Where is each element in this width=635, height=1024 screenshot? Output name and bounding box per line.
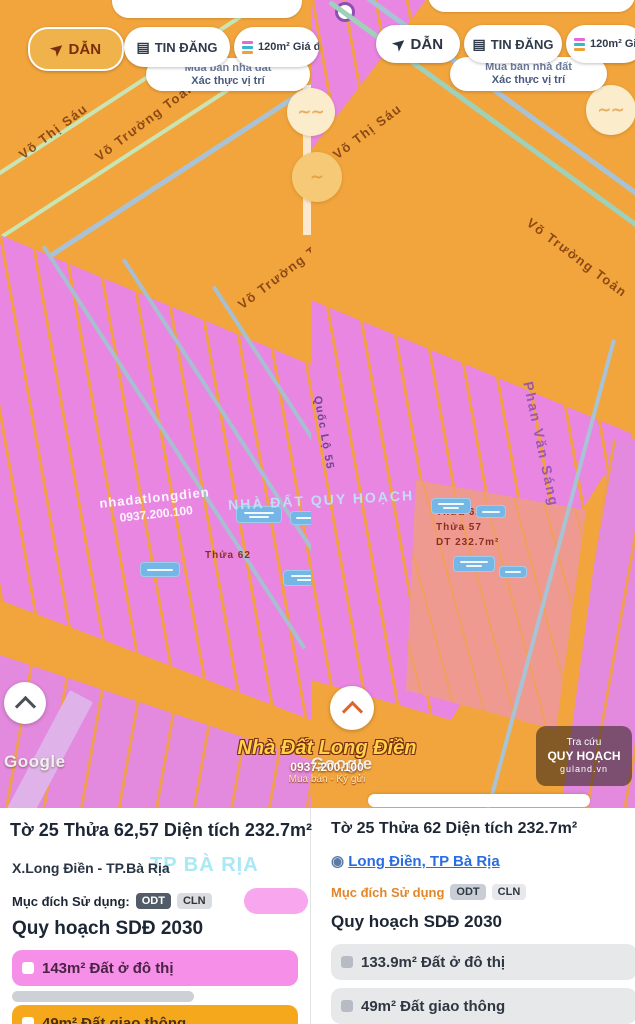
zoning-chip-traffic[interactable]: 49m² Đất giao thông: [331, 988, 635, 1024]
land-price-label: 120m² Giá đất: [258, 41, 319, 53]
land-price-button[interactable]: 120m² Giá đất: [234, 27, 319, 67]
parcel-info-right: Tờ 25 Thửa 62 Diện tích 232.7m² ◉ Long Đ…: [311, 808, 635, 1024]
chevron-up-fab[interactable]: [4, 682, 46, 724]
watermark-line: QUY HOẠCH: [547, 749, 620, 764]
navigation-arrow-icon: ➤: [389, 33, 410, 55]
parcel-location-link[interactable]: ◉ Long Điền, TP Bà Rịa: [331, 852, 500, 870]
chevron-up-icon: [341, 701, 362, 722]
purpose-row: Mục đích Sử dụng: ODT CLN: [12, 888, 308, 914]
road-label: Võ Thị Sáu: [16, 101, 91, 162]
listing-marker[interactable]: [431, 498, 471, 514]
parcel-annotation: Thửa 62: [205, 548, 251, 563]
seller-watermark-orange: Nhà Đất Long Điền 0937.200.100 Mua bán -…: [222, 736, 432, 786]
pink-pill-badge[interactable]: [244, 888, 308, 914]
watermark-title: Nhà Đất Long Điền: [222, 736, 432, 760]
zoning-chip-residential[interactable]: 143m² Đất ở đô thị: [12, 950, 298, 986]
sticker-circle[interactable]: ∼∼: [287, 88, 335, 136]
road-label: Võ Trường Toản: [524, 215, 630, 300]
location-text: X.Long Điền - TP.Bà Rịa: [12, 860, 170, 876]
sticker-circle[interactable]: ∼∼: [586, 85, 635, 135]
planning-title: Quy hoạch SDĐ 2030: [12, 918, 203, 940]
top-search-pill[interactable]: [428, 0, 635, 12]
zoning-chip-residential[interactable]: 133.9m² Đất ở đô thị: [331, 944, 635, 980]
parcel-location[interactable]: X.Long Điền - TP.Bà Rịa: [12, 860, 170, 876]
navigation-arrow-icon: ➤: [47, 38, 68, 60]
google-logo[interactable]: Google: [4, 752, 66, 772]
listings-button[interactable]: ▤ TIN ĐĂNG: [464, 25, 562, 63]
banner-line: Xác thực vị trí: [191, 75, 264, 88]
zoning-parcel-block: [0, 150, 311, 760]
purpose-row: Mục đích Sử dụng ODT CLN: [331, 884, 627, 900]
sheet-drag-handle[interactable]: [368, 794, 590, 807]
chevron-up-icon: [14, 696, 35, 717]
chip-bullet: [22, 962, 34, 974]
zoning-chip-traffic[interactable]: 49m² Đất giao thông: [12, 1005, 298, 1024]
chip-bullet: [22, 1017, 34, 1024]
planning-title: Quy hoạch SDĐ 2030: [331, 912, 502, 932]
listing-marker[interactable]: [283, 570, 311, 586]
directions-button[interactable]: ➤ DẪN: [28, 27, 124, 71]
zoning-badge-cln: CLN: [177, 893, 212, 909]
listing-marker[interactable]: [140, 562, 180, 577]
parcel-title: Tờ 25 Thửa 62 Diện tích 232.7m²: [331, 820, 631, 838]
road-label: Võ Trường Toản: [235, 227, 311, 312]
listing-marker[interactable]: [499, 566, 527, 578]
sticker-circle[interactable]: ∼: [292, 152, 342, 202]
zoning-badge-odt: ODT: [450, 884, 485, 900]
banner-line: Mua bán nhà đất: [485, 61, 572, 74]
newspaper-icon: ▤: [472, 36, 485, 53]
pin-icon: ◉: [331, 853, 344, 870]
listing-marker[interactable]: [476, 505, 506, 518]
planning-watermark-chip: Tra cứu QUY HOẠCH guland.vn: [536, 726, 632, 786]
chip-label: 143m² Đất ở đô thị: [42, 960, 174, 977]
zoning-parcel-block: [311, 0, 451, 160]
parcel-annotation: DT 232.7m²: [436, 535, 556, 550]
directions-label: DẪN: [69, 41, 102, 58]
listings-button[interactable]: ▤ TIN ĐĂNG: [124, 27, 230, 67]
banner-line: Xác thực vị trí: [492, 74, 565, 87]
watermark-phone: 0937.200.100: [222, 760, 432, 774]
purpose-label: Mục đích Sử dụng:: [12, 894, 130, 909]
directions-label: DẪN: [411, 36, 444, 53]
bottom-sheets: TP BÀ RỊA Tờ 25 Thửa 62,57 Diện tích 232…: [0, 808, 635, 1024]
chip-label: 49m² Đất giao thông: [361, 998, 505, 1015]
map-right[interactable]: Võ Thị Sáu Võ Trường Toản Phan Văn Sáng …: [311, 0, 635, 808]
listings-label: TIN ĐĂNG: [491, 37, 554, 52]
parcel-info-left: TP BÀ RỊA Tờ 25 Thửa 62,57 Diện tích 232…: [0, 808, 310, 1024]
land-price-label: 120m² Giá đất: [590, 38, 635, 50]
chip-label: 49m² Đất giao thông: [42, 1015, 186, 1024]
watermark-line: Tra cứu: [567, 737, 602, 750]
app-screenshot-collage: Võ Thị Sáu Võ Trường Toản Võ Trường Toản…: [0, 0, 635, 1024]
zoning-badge-odt: ODT: [136, 893, 171, 909]
chip-label: 133.9m² Đất ở đô thị: [361, 954, 505, 971]
chip-bullet: [341, 1000, 353, 1012]
purpose-label: Mục đích Sử dụng: [331, 885, 444, 900]
newspaper-icon: ▤: [136, 39, 149, 56]
map-area[interactable]: Võ Thị Sáu Võ Trường Toản Võ Trường Toản…: [0, 0, 635, 808]
zoning-badge-cln: CLN: [492, 884, 527, 900]
listing-marker[interactable]: [290, 511, 311, 525]
chip-bullet: [341, 956, 353, 968]
listing-marker[interactable]: [453, 556, 495, 572]
map-left[interactable]: Võ Thị Sáu Võ Trường Toản Võ Trường Toản…: [0, 0, 311, 808]
layers-icon: [242, 41, 253, 54]
parcel-title: Tờ 25 Thửa 62,57 Diện tích 232.7m²: [10, 820, 310, 841]
listings-label: TIN ĐĂNG: [155, 40, 218, 55]
watermark-sub: Mua bán - Ký gửi: [222, 774, 432, 786]
top-search-pill[interactable]: [112, 0, 302, 18]
layers-icon: [574, 38, 585, 51]
location-text: Long Điền, TP Bà Rịa: [348, 853, 499, 870]
parcel-annotation: Thửa 57: [436, 520, 556, 535]
directions-button[interactable]: ➤ DẪN: [376, 25, 460, 63]
divider-bar: [12, 991, 194, 1002]
chevron-up-fab[interactable]: [330, 686, 374, 730]
land-price-button[interactable]: 120m² Giá đất: [566, 25, 635, 63]
watermark-line: guland.vn: [560, 764, 608, 775]
